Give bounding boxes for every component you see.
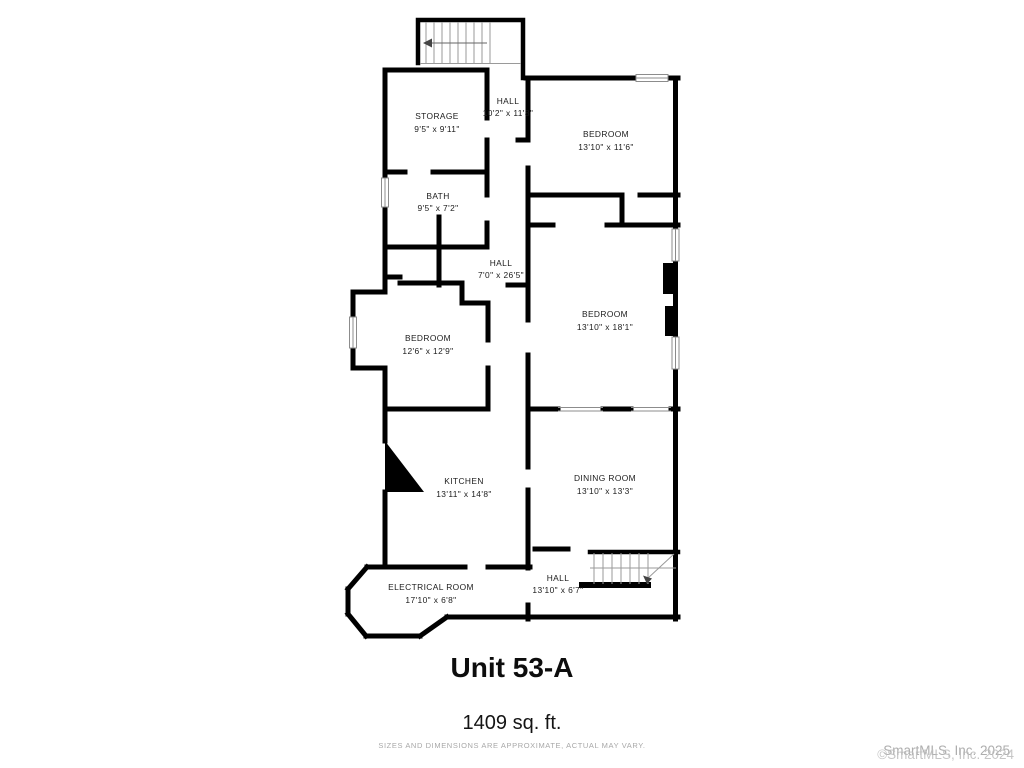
unit-title: Unit 53-A: [0, 652, 1024, 684]
lower-staircase: [582, 552, 678, 585]
room-name: DINING ROOM: [574, 473, 636, 483]
room-dims: 13'11" x 14'8": [436, 489, 492, 499]
window-bath: [382, 178, 389, 207]
room-label-electrical: ELECTRICAL ROOM 17'10" x 6'8": [388, 582, 474, 605]
room-dims: 10'2" x 11'8": [483, 108, 534, 118]
interior-walls: [385, 70, 678, 619]
room-dims: 13'10" x 13'3": [577, 486, 633, 496]
room-name: BEDROOM: [583, 129, 629, 139]
window-left-bedroom-bay: [350, 317, 357, 348]
room-label-bedroom-top: BEDROOM 13'10" x 11'6": [578, 129, 634, 152]
right-wall-chimney-upper: [663, 263, 675, 294]
room-dims: 13'10" x 11'6": [578, 142, 634, 152]
right-wall-chimney-lower: [665, 306, 675, 336]
room-dims: 17'10" x 6'8": [405, 595, 456, 605]
room-label-dining: DINING ROOM 13'10" x 13'3": [574, 473, 636, 496]
room-dims: 13'10" x 6'7": [532, 585, 583, 595]
room-name: BEDROOM: [405, 333, 451, 343]
lower-stair-treads: [590, 553, 676, 584]
room-dims: 13'10" x 18'1": [577, 322, 633, 332]
room-dims: 12'6" x 12'9": [402, 346, 453, 356]
room-dims: 7'0" x 26'5": [478, 270, 524, 280]
window-right-lower: [672, 337, 679, 369]
room-name: KITCHEN: [444, 476, 484, 486]
room-name: ELECTRICAL ROOM: [388, 582, 474, 592]
floor-plan-page: STORAGE 9'5" x 9'11" HALL 10'2" x 11'8" …: [0, 0, 1024, 768]
watermark-line-2024: ©SmartMLS, Inc. 2024: [877, 747, 1014, 762]
room-label-kitchen: KITCHEN 13'11" x 14'8": [436, 476, 492, 499]
room-label-storage: STORAGE 9'5" x 9'11": [414, 111, 459, 134]
watermark: SmartMLS, Inc. 2025 ©SmartMLS, Inc. 2024: [716, 741, 1016, 765]
room-label-bath: BATH 9'5" x 7'2": [417, 191, 458, 213]
window-right-upper: [672, 229, 679, 261]
room-name: BATH: [426, 191, 449, 201]
room-name: HALL: [497, 96, 520, 106]
room-dims: 9'5" x 9'11": [414, 124, 459, 134]
room-name: HALL: [547, 573, 570, 583]
interior-wall-path: [385, 70, 678, 619]
room-name: HALL: [490, 258, 513, 268]
room-name: STORAGE: [415, 111, 459, 121]
area-text: 1409 sq. ft.: [0, 712, 1024, 735]
room-dims: 9'5" x 7'2": [417, 203, 458, 213]
room-labels: STORAGE 9'5" x 9'11" HALL 10'2" x 11'8" …: [388, 96, 636, 605]
window-top-bedroom: [636, 75, 668, 82]
room-label-bedroom-right: BEDROOM 13'10" x 18'1": [577, 309, 633, 332]
upper-stair-arrow-icon: [423, 39, 432, 48]
room-label-hall-lower: HALL 13'10" x 6'7": [532, 573, 583, 595]
room-label-hall-middle: HALL 7'0" x 26'5": [478, 258, 524, 280]
room-label-bedroom-left: BEDROOM 12'6" x 12'9": [402, 333, 453, 356]
kitchen-chimney: [385, 441, 424, 492]
room-name: BEDROOM: [582, 309, 628, 319]
